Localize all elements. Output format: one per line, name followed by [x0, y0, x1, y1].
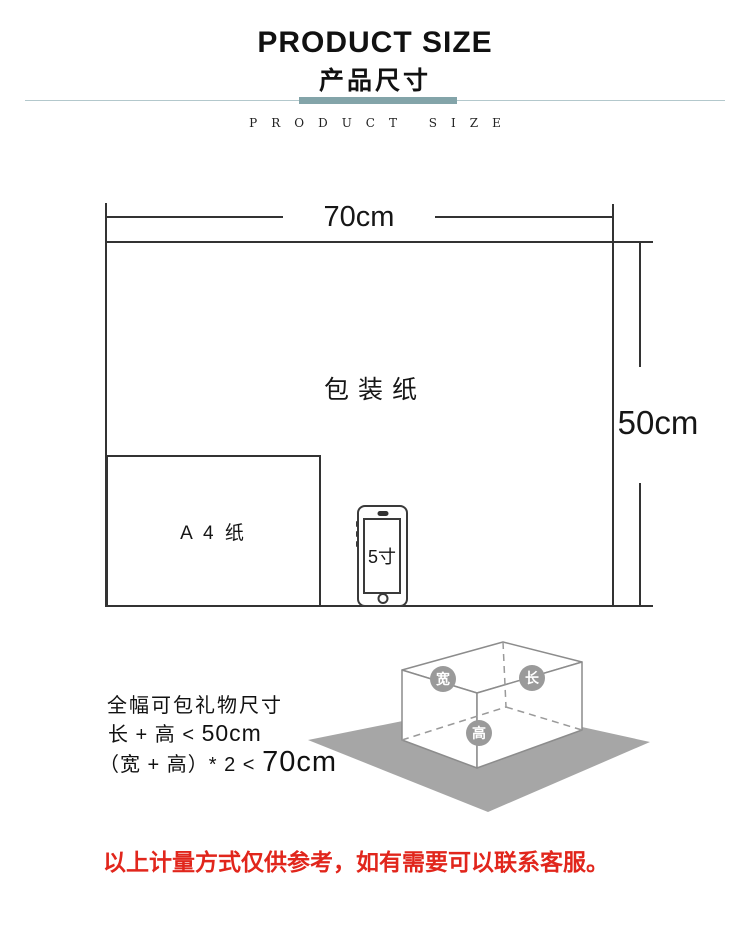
product-size-section: PRODUCT SIZE 产品尺寸 PRODUCT SIZE 70cm 50cm…: [0, 0, 750, 934]
height-dimension-label: 50cm: [602, 404, 714, 442]
section-subtitle: 产品尺寸: [0, 61, 750, 97]
rule2-formula: （宽 + 高）* 2 <: [99, 754, 262, 776]
paper-label: 包装纸: [270, 370, 480, 406]
divider-accent-bar: [299, 97, 457, 104]
rule1-formula: 长 + 高 <: [108, 724, 202, 746]
width-badge-label: 宽: [436, 671, 450, 687]
length-badge-label: 长: [525, 670, 540, 686]
a4-paper-outline: A 4 纸: [106, 455, 321, 607]
width-dimension-label: 70cm: [283, 201, 435, 234]
phone-home-button-icon: [377, 593, 388, 604]
phone-volume-button-icon: [356, 541, 359, 547]
phone-volume-button-icon: [356, 521, 359, 527]
rule1-value: 50cm: [202, 720, 262, 746]
paper-top-edge: [106, 241, 653, 243]
section-tagline: PRODUCT SIZE: [0, 116, 750, 130]
gift-size-rule-1: 长 + 高 < 50cm: [108, 718, 262, 747]
gift-box-illustration: 宽 长 高: [300, 630, 660, 830]
phone-outline: 5寸: [357, 505, 408, 607]
phone-size-label: 5寸: [368, 543, 396, 569]
section-title: PRODUCT SIZE: [0, 26, 750, 60]
phone-earpiece-icon: [377, 511, 388, 516]
a4-paper-label: A 4 纸: [180, 518, 247, 545]
phone-volume-button-icon: [356, 531, 359, 537]
height-dimension-line-bottom: [639, 483, 641, 605]
height-badge-label: 高: [472, 725, 486, 741]
gift-size-title: 全幅可包礼物尺寸: [107, 689, 283, 718]
width-dimension-line-right: [435, 216, 612, 218]
width-dimension-line-left: [106, 216, 283, 218]
footer-note: 以上计量方式仅供参考，如有需要可以联系客服。: [103, 843, 609, 877]
height-dimension-line-top: [639, 243, 641, 367]
phone-screen: 5寸: [363, 518, 401, 594]
